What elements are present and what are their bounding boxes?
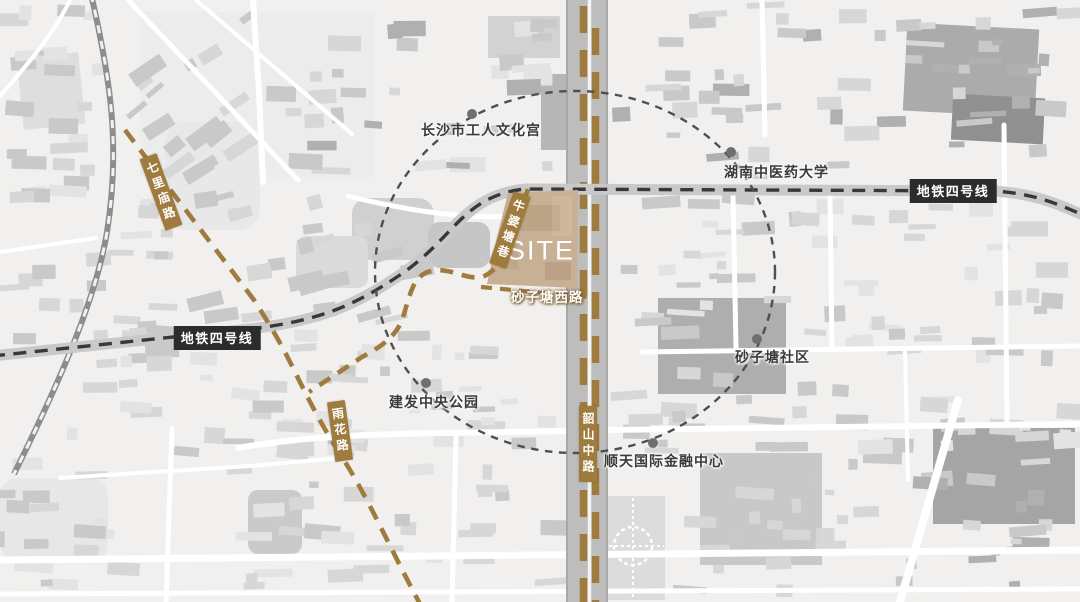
landmark-dot-shuntian-ifc — [648, 438, 658, 448]
road-badge-qilimiao: 七里庙路 — [140, 153, 183, 231]
road-badge-shaoshan: 韶山中路 — [579, 406, 597, 482]
site-analysis-map: 长沙市工人文化宫 湖南中医药大学 砂子塘社区 顺天国际金融中心 建发中央公园 砂… — [0, 0, 1080, 602]
landmark-dot-cultural-palace — [467, 109, 477, 119]
label-cultural-palace: 长沙市工人文化宫 — [421, 120, 541, 140]
road-badge-yuhua: 雨花路 — [327, 400, 353, 462]
landmark-dot-tcm-university — [726, 147, 736, 157]
metro-line-badge-right: 地铁四号线 — [910, 179, 997, 203]
label-jianfa-park: 建发中央公园 — [389, 392, 479, 412]
label-shazitang-west-road: 砂子塘西路 — [511, 286, 584, 306]
landmark-dot-shazitang-community — [752, 334, 762, 344]
label-overlay: 长沙市工人文化宫 湖南中医药大学 砂子塘社区 顺天国际金融中心 建发中央公园 砂… — [0, 0, 1080, 602]
site-label: SITE — [507, 236, 575, 267]
label-shazitang-community: 砂子塘社区 — [735, 347, 810, 367]
label-tcm-university: 湖南中医药大学 — [724, 162, 829, 182]
metro-line-badge-left: 地铁四号线 — [174, 326, 261, 350]
label-shuntian-ifc: 顺天国际金融中心 — [604, 451, 724, 471]
landmark-dot-jianfa-park — [421, 378, 431, 388]
